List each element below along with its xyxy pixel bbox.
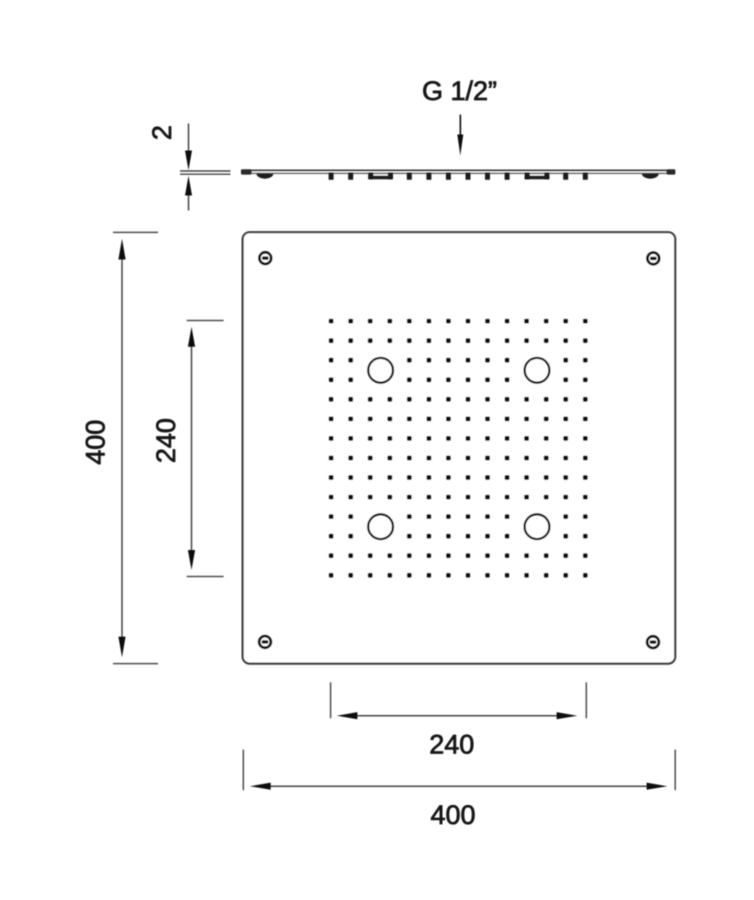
svg-text:400: 400	[430, 800, 475, 830]
svg-text:240: 240	[429, 730, 474, 760]
svg-text:2: 2	[147, 125, 177, 140]
svg-text:G 1/2”: G 1/2”	[422, 76, 497, 106]
svg-text:240: 240	[151, 418, 181, 463]
svg-text:400: 400	[81, 420, 111, 465]
